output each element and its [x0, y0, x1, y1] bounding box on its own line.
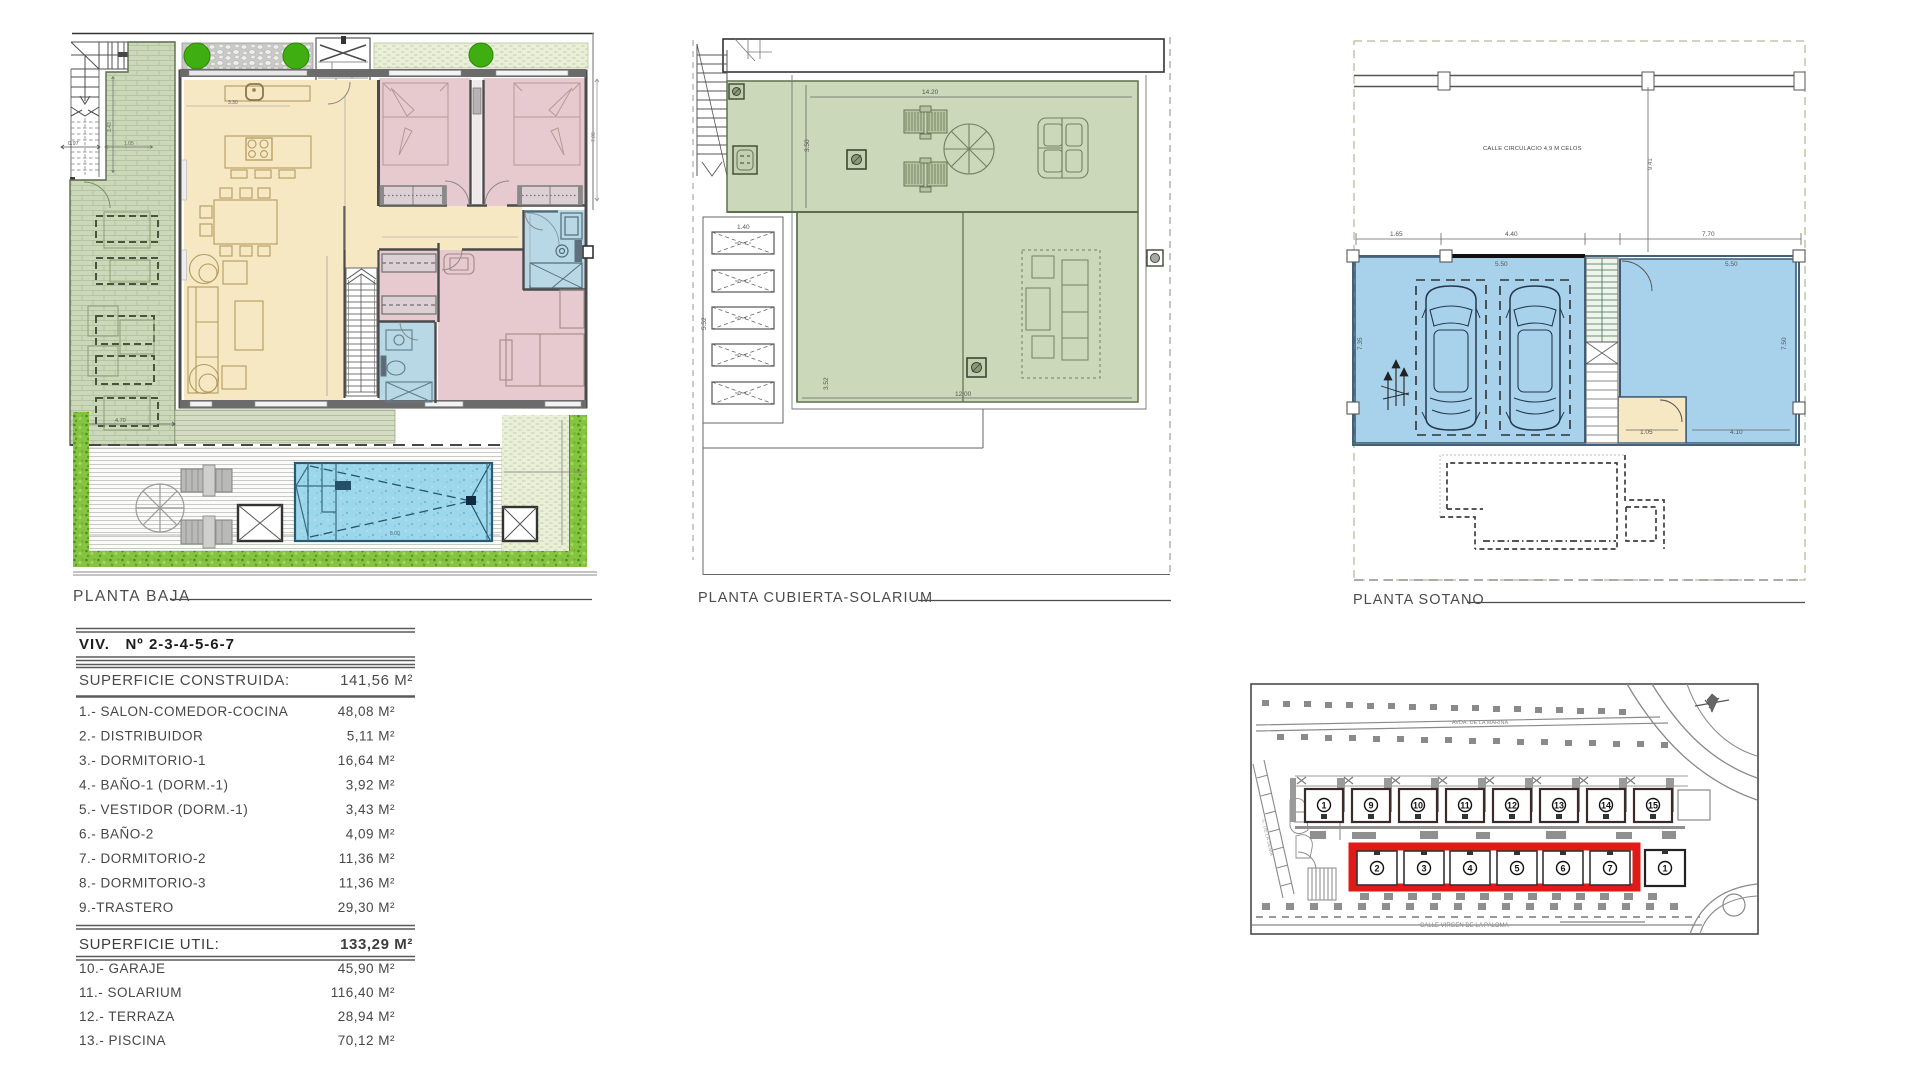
svg-text:141,56 M²: 141,56 M² — [340, 672, 413, 689]
svg-text:13: 13 — [1554, 801, 1564, 811]
svg-text:11.- SOLARIUM: 11.- SOLARIUM — [79, 985, 182, 1000]
svg-text:3.50: 3.50 — [804, 139, 811, 152]
svg-text:CALLE VIRGEN DE LA PALOMA: CALLE VIRGEN DE LA PALOMA — [1420, 923, 1509, 929]
svg-text:5: 5 — [1514, 864, 1519, 874]
svg-text:14: 14 — [1601, 801, 1611, 811]
svg-text:0.97: 0.97 — [68, 141, 79, 147]
svg-text:9.-TRASTERO: 9.-TRASTERO — [79, 900, 174, 915]
svg-text:45,90 M²: 45,90 M² — [338, 961, 395, 976]
svg-text:133,29 M²: 133,29 M² — [340, 936, 413, 953]
svg-text:7: 7 — [1607, 864, 1612, 874]
svg-text:5.50: 5.50 — [1495, 261, 1508, 268]
svg-text:3: 3 — [1421, 864, 1426, 874]
svg-text:48,08 M²: 48,08 M² — [338, 704, 395, 719]
svg-text:SUPERFICIE UTIL:: SUPERFICIE UTIL: — [79, 936, 219, 953]
svg-text:10.- GARAJE: 10.- GARAJE — [79, 961, 166, 976]
svg-text:11,36 M²: 11,36 M² — [339, 851, 395, 866]
svg-text:116,40 M²: 116,40 M² — [331, 985, 395, 1000]
svg-text:10: 10 — [1413, 801, 1423, 811]
svg-text:15: 15 — [1648, 801, 1658, 811]
svg-text:1.- SALON-COMEDOR-COCINA: 1.- SALON-COMEDOR-COCINA — [79, 704, 288, 719]
svg-text:9: 9 — [1368, 801, 1373, 811]
svg-text:7.70: 7.70 — [1702, 231, 1715, 238]
svg-text:AVDA. DE LA MARINA: AVDA. DE LA MARINA — [1452, 720, 1508, 726]
svg-text:11,36 M²: 11,36 M² — [339, 876, 395, 891]
svg-text:12: 12 — [1507, 801, 1517, 811]
svg-text:PLANTA BAJA: PLANTA BAJA — [73, 588, 191, 605]
svg-text:5.50: 5.50 — [1725, 261, 1738, 268]
svg-text:28,94 M²: 28,94 M² — [338, 1009, 395, 1024]
svg-text:VIV. Nº 2-3-4-5-6-7: VIV. Nº 2-3-4-5-6-7 — [79, 636, 235, 653]
svg-text:1: 1 — [1662, 864, 1667, 874]
svg-text:4.- BAÑO-1 (DORM.-1): 4.- BAÑO-1 (DORM.-1) — [79, 778, 229, 793]
svg-text:16,64 M²: 16,64 M² — [338, 753, 395, 768]
svg-text:1.05: 1.05 — [124, 141, 134, 147]
svg-text:4.70: 4.70 — [115, 418, 126, 424]
svg-text:3.52: 3.52 — [823, 377, 830, 390]
svg-text:7.35: 7.35 — [1357, 337, 1364, 350]
svg-text:1.40: 1.40 — [737, 224, 750, 231]
svg-text:3,43 M²: 3,43 M² — [346, 802, 395, 817]
svg-text:7.50: 7.50 — [1781, 337, 1788, 350]
svg-text:3,92 M²: 3,92 M² — [346, 778, 395, 793]
svg-text:12.- TERRAZA: 12.- TERRAZA — [79, 1009, 175, 1024]
svg-text:PLANTA CUBIERTA-SOLARIUM: PLANTA CUBIERTA-SOLARIUM — [698, 590, 933, 606]
svg-text:SUPERFICIE CONSTRUIDA:: SUPERFICIE CONSTRUIDA: — [79, 672, 290, 689]
svg-text:8.00: 8.00 — [390, 531, 400, 537]
svg-text:7.- DORMITORIO-2: 7.- DORMITORIO-2 — [79, 851, 206, 866]
svg-text:4.40: 4.40 — [1505, 231, 1518, 238]
svg-text:3.30: 3.30 — [228, 100, 238, 106]
svg-text:11: 11 — [1460, 801, 1470, 811]
svg-text:1: 1 — [1321, 801, 1326, 811]
svg-text:1.65: 1.65 — [1390, 231, 1403, 238]
svg-text:6.- BAÑO-2: 6.- BAÑO-2 — [79, 827, 154, 842]
svg-text:PLANTA SOTANO: PLANTA SOTANO — [1353, 592, 1485, 608]
svg-text:29,30 M²: 29,30 M² — [338, 900, 395, 915]
svg-text:5.52: 5.52 — [701, 317, 708, 330]
svg-text:13.- PISCINA: 13.- PISCINA — [79, 1033, 166, 1048]
svg-text:12.00: 12.00 — [955, 391, 972, 398]
svg-text:2: 2 — [1374, 864, 1379, 874]
svg-text:4,09 M²: 4,09 M² — [346, 827, 395, 842]
svg-text:14.20: 14.20 — [922, 89, 939, 96]
svg-text:7.08: 7.08 — [591, 132, 597, 142]
svg-text:2.- DISTRIBUIDOR: 2.- DISTRIBUIDOR — [79, 729, 203, 744]
svg-text:4: 4 — [1467, 864, 1472, 874]
svg-text:5.- VESTIDOR (DORM.-1): 5.- VESTIDOR (DORM.-1) — [79, 802, 248, 817]
svg-text:8.- DORMITORIO-3: 8.- DORMITORIO-3 — [79, 876, 206, 891]
svg-text:5,11 M²: 5,11 M² — [347, 729, 395, 744]
svg-text:CALLE CIRCULACIO 4,9 M CELOS: CALLE CIRCULACIO 4,9 M CELOS — [1483, 146, 1582, 152]
svg-text:3.- DORMITORIO-1: 3.- DORMITORIO-1 — [79, 753, 206, 768]
svg-text:9.41: 9.41 — [1648, 158, 1654, 170]
svg-text:3.43: 3.43 — [107, 122, 113, 132]
svg-text:70,12 M²: 70,12 M² — [338, 1033, 395, 1048]
svg-text:6: 6 — [1560, 864, 1565, 874]
